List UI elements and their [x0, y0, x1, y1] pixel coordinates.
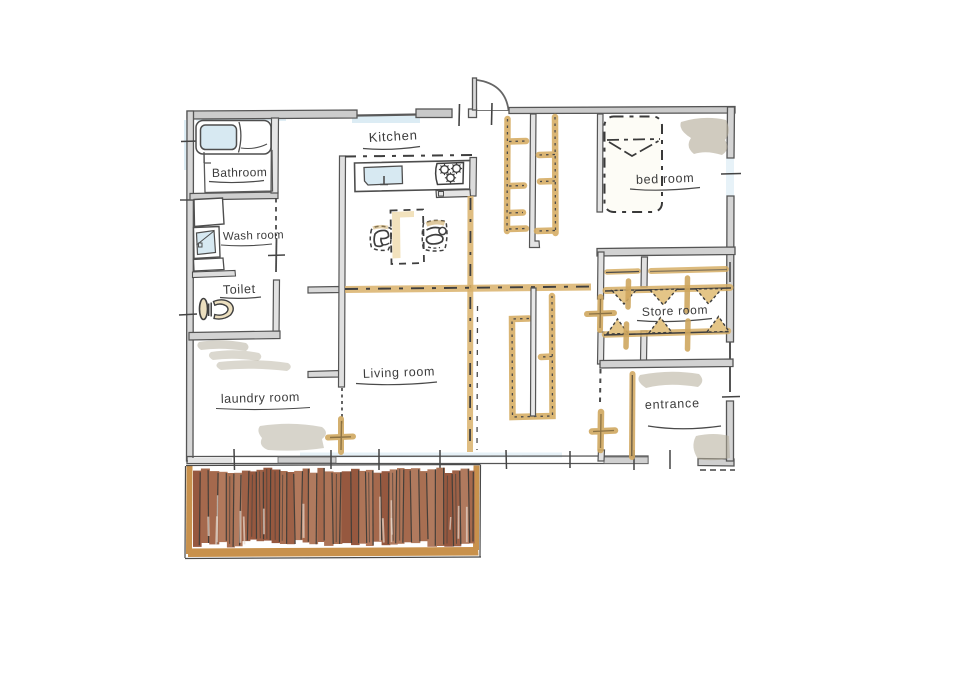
svg-text:Toilet: Toilet — [223, 282, 256, 297]
svg-text:laundry room: laundry room — [221, 390, 300, 406]
svg-text:Store room: Store room — [642, 303, 709, 319]
svg-text:Bathroom: Bathroom — [212, 165, 267, 180]
svg-text:entrance: entrance — [645, 396, 701, 412]
svg-text:bed room: bed room — [636, 171, 695, 187]
svg-text:Living room: Living room — [363, 364, 436, 381]
svg-text:Kitchen: Kitchen — [368, 127, 418, 145]
svg-text:Wash room: Wash room — [223, 229, 284, 243]
